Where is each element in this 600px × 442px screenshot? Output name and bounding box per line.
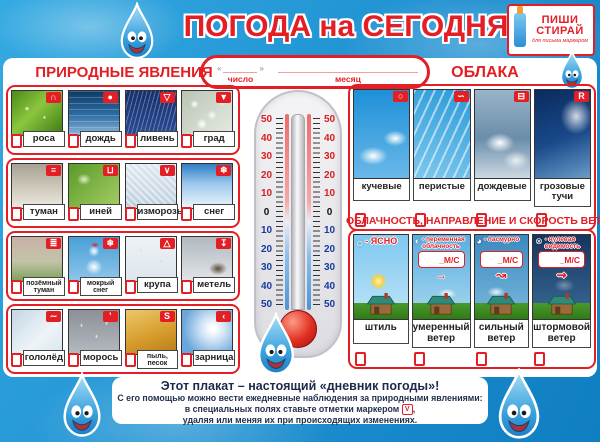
cloud-photo: ⊟ [474,89,531,179]
weather-symbol-icon: ∨ [160,165,175,176]
footer-line3-post: , [413,404,415,414]
wind-arrow-icon: ⇝ [533,269,590,281]
phenomenon-checkbox[interactable] [11,134,22,148]
phenomenon-card: ▼ град [181,90,235,150]
month-blank-field[interactable] [278,63,418,73]
phenomenon-photo: ’ [68,309,120,355]
footer-line3-pre: в специальных полях ставьте отметки марк… [185,404,400,414]
wind-arrow-icon: → [413,269,470,281]
phenomenon-photo: S [125,309,177,355]
phenomenon-card: S пыль, песок [125,309,179,369]
wind-legend-label: - ЯСНО [365,237,397,246]
phenomenon-checkbox[interactable] [125,353,136,367]
poster-title: ПОГОДА на СЕГОДНЯ [178,10,514,44]
thermometer-degree-label: 40 [322,281,337,292]
checkmark-box-icon: V [402,404,413,415]
phenomenon-checkbox[interactable] [125,207,136,221]
phenomenon-card: ‹ зарница [181,309,235,369]
cloud-symbol-icon: ○ [393,91,408,102]
cloud-symbol-icon: R [574,91,589,102]
phenomenon-checkbox[interactable] [68,134,79,148]
thermometer-degree-label: 10 [322,188,337,199]
cloud-photo: ○ [353,89,410,179]
marker-pen-icon [514,13,526,47]
weather-symbol-icon: ∼ [46,311,61,322]
thermometer-ticks-right [313,118,320,306]
phenomenon-photo: ▼ [181,90,233,136]
wind-photo: ◐ - переменная облачность _М/С → [412,234,471,320]
phenomena-row: ∼ гололёд ’ морось S пыль, песок ‹ зарни… [6,304,240,374]
phenomenon-checkbox[interactable] [125,134,136,148]
phenomenon-label: пыль, песок [137,350,179,369]
wind-checkbox[interactable] [476,352,487,366]
cloud-symbol-icon: ⊟ [514,91,529,102]
wind-card: ◕ - пасмурно _М/С ↝ сильный ветер [474,234,530,364]
thermometer-degree-label: 30 [259,262,274,273]
pishi-stiray-logo: ПИШИ СТИРАЙ для письма маркером [507,4,595,56]
weather-symbol-icon: ▼ [216,92,231,103]
wind-card: ⊗ - нулевая видимость _М/С ⇝ штормовой в… [532,234,591,364]
footer-line2: С его помощью можно вести ежедневные наб… [112,393,488,404]
phenomenon-label: крупа [137,277,179,293]
thermometer-degree-label: 50 [259,114,274,125]
water-drop-mascot-footer-left [56,372,108,438]
cloud-cover-circle-icon: ⊗ [535,237,543,246]
phenomenon-label: дождь [80,131,122,147]
phenomenon-card: ∨ изморозь [125,163,179,223]
wind-legend-label: - переменная облачность [422,237,465,251]
phenomenon-checkbox[interactable] [181,134,192,148]
phenomenon-card: ≣ позёмный туман [11,236,65,296]
thermometer-degree-label: 10 [259,188,274,199]
phenomenon-checkbox[interactable] [68,207,79,221]
weather-symbol-icon: ≡ [46,165,61,176]
wind-photo: ⊗ - нулевая видимость _М/С ⇝ [532,234,591,320]
weather-symbol-icon: ’ [103,311,118,322]
phenomenon-label: град [193,131,235,147]
phenomenon-checkbox[interactable] [11,207,22,221]
wind-label: умеренный ветер [412,320,471,348]
phenomenon-label: морось [80,350,122,366]
thermometer-degree-label: 50 [322,114,337,125]
phenomenon-photo: ∩ [11,90,63,136]
wind-label: штормовой ветер [532,320,591,348]
phenomenon-checkbox[interactable] [181,207,192,221]
wind-card: ◐ - переменная облачность _М/С → умеренн… [412,234,471,364]
cloud-card: ⊟ дождевые [474,89,531,226]
thermometer-degree-label: 50 [322,299,337,310]
wind-speed-field[interactable]: _М/С [418,251,465,268]
clouds-group: ○ кучевые ∽ перистые ⊟ дождевые R грозов… [348,84,596,231]
wind-legend-label: - нулевая видимость [545,237,581,251]
water-drop-mascot-header [106,2,168,60]
weather-symbol-icon: ‹ [216,311,231,322]
phenomenon-checkbox[interactable] [125,280,136,294]
phenomenon-checkbox[interactable] [68,353,79,367]
month-label: месяц [335,74,361,84]
phenomenon-card: ’ морось [68,309,122,369]
phenomenon-card: ≡ туман [11,163,65,223]
wind-photo: ○ - ЯСНО [353,234,409,320]
cloud-label: перистые [413,179,470,201]
phenomena-row: ≡ туман ⊔ иней ∨ изморозь ❄ снег [6,158,240,228]
wind-speed-unit: _М/С [560,255,580,265]
cloud-symbol-icon: ∽ [454,91,469,102]
wind-photo: ◕ - пасмурно _М/С ↝ [474,234,530,320]
phenomenon-photo: ↧ [181,236,233,282]
cloud-label: кучевые [353,179,410,201]
thermometer-degree-label: 40 [259,281,274,292]
wind-speed-unit: _М/С [498,255,518,265]
phenomenon-photo: ≡ [11,163,63,209]
thermometer-degree-label: 30 [322,262,337,273]
weather-symbol-icon: ≣ [46,238,61,249]
phenomenon-checkbox[interactable] [181,353,192,367]
thermometer-scale-right: 504030201001020304050 [322,114,337,310]
weather-symbol-icon: ⊔ [103,165,118,176]
weather-symbol-icon: ❄ [103,238,118,249]
phenomenon-photo: ▽ [125,90,177,136]
thermometer-degree-label: 30 [259,151,274,162]
phenomenon-card: ∩ роса [11,90,65,150]
house-icon [484,292,518,316]
phenomena-row: ∩ роса ● дождь ▽ ливень ▼ град [6,85,240,155]
weather-symbol-icon: △ [160,238,175,249]
cloud-card: ∽ перистые [413,89,470,226]
cloud-label: грозовые тучи [534,179,591,207]
weather-symbol-icon: ❄ [216,165,231,176]
thermometer-degree-label: 10 [259,225,274,236]
phenomena-section-title: ПРИРОДНЫЕ ЯВЛЕНИЯ [8,64,240,81]
logo-subtitle: для письма маркером [529,39,591,45]
thermometer-degree-label: 0 [259,207,274,218]
phenomenon-label: роса [23,131,65,147]
footer-text-panel: Этот плакат – настоящий «дневник погоды»… [112,377,488,424]
phenomena-row: ≣ позёмный туман ❄ мокрый снег △ крупа ↧… [6,231,240,301]
wind-checkbox[interactable] [414,352,425,366]
wind-arrow-icon: ↝ [475,269,529,281]
phenomenon-checkbox[interactable] [68,280,79,294]
phenomenon-card: △ крупа [125,236,179,296]
thermometer-degree-label: 20 [259,244,274,255]
phenomenon-label: позёмный туман [23,277,65,296]
phenomenon-label: изморозь [137,204,179,220]
weather-symbol-icon: ● [103,92,118,103]
thermometer-degree-label: 20 [322,244,337,255]
phenomenon-checkbox[interactable] [11,353,22,367]
thermometer-degree-label: 20 [322,170,337,181]
thermometer-degree-label: 40 [259,133,274,144]
water-drop-mascot-thermometer [250,312,302,376]
phenomenon-photo: ‹ [181,309,233,355]
thermometer-ticks-left [276,118,283,306]
thermometer-degree-label: 0 [322,207,337,218]
phenomenon-card: ● дождь [68,90,122,150]
phenomenon-label: туман [23,204,65,220]
cloud-card: R грозовые тучи [534,89,591,226]
phenomenon-label: снег [193,204,235,220]
clouds-section-title: ОБЛАКА [430,64,540,82]
cloud-card: ○ кучевые [353,89,410,226]
phenomenon-photo: ❄ [181,163,233,209]
house-icon [545,292,579,316]
weather-symbol-icon: S [160,311,175,322]
wind-label: сильный ветер [474,320,530,348]
wind-legend-label: - пасмурно [484,237,519,244]
phenomenon-label: ливень [137,131,179,147]
thermometer-degree-label: 50 [259,299,274,310]
phenomenon-card: ↧ метель [181,236,235,296]
phenomenon-checkbox[interactable] [181,280,192,294]
wind-checkbox[interactable] [534,352,545,366]
wind-speed-field[interactable]: _М/С [480,251,524,268]
logo-line2: СТИРАЙ [529,26,591,37]
phenomenon-label: мокрый снег [80,277,122,296]
weather-poster: ПОГОДА на СЕГОДНЯ ПИШИ СТИРАЙ для письма… [0,0,600,442]
phenomenon-card: ▽ ливень [125,90,179,150]
phenomenon-card: ∼ гололёд [11,309,65,369]
weather-symbol-icon: ▽ [160,92,175,103]
thermometer-scale-left: 504030201001020304050 [259,114,274,310]
cloud-label: дождевые [474,179,531,201]
phenomenon-photo: ● [68,90,120,136]
phenomenon-photo: ∨ [125,163,177,209]
phenomenon-card: ⊔ иней [68,163,122,223]
wind-speed-field[interactable]: _М/С [538,251,585,268]
phenomenon-label: гололёд [23,350,65,366]
cloud-cover-circle-icon: ○ [356,237,363,249]
thermometer-degree-label: 30 [322,151,337,162]
thermometer-tube [291,114,305,310]
quote-close: » [259,64,263,73]
thermometer-degree-label: 10 [322,225,337,236]
wind-label: штиль [353,320,409,344]
water-drop-mascot-footer-right [490,368,548,440]
phenomenon-label: зарница [193,350,235,366]
phenomenon-checkbox[interactable] [11,280,22,294]
phenomenon-photo: ⊔ [68,163,120,209]
phenomena-grid: ∩ роса ● дождь ▽ ливень ▼ град ≡ туман ⊔… [6,85,240,377]
phenomenon-label: иней [80,204,122,220]
house-icon [364,292,398,316]
footer-line4: удаляя или меняя их при происходящих изм… [112,415,488,426]
phenomenon-photo: ❄ [68,236,120,282]
footer-headline: Этот плакат – настоящий «дневник погоды»… [112,379,488,393]
phenomenon-photo: ∼ [11,309,63,355]
cloud-cover-circle-icon: ◕ [477,237,482,246]
phenomenon-card: ❄ мокрый снег [68,236,122,296]
cloud-cover-circle-icon: ◐ [415,237,420,246]
wind-card: ○ - ЯСНО штиль [353,234,409,364]
wind-group: ○ - ЯСНО штиль ◐ - переменная облачность… [348,229,596,369]
wind-section-title: ОБЛАЧНОСТЬ, НАПРАВЛЕНИЕ И СКОРОСТЬ ВЕТРА [346,215,598,227]
thermometer-degree-label: 40 [322,133,337,144]
weather-symbol-icon: ↧ [216,238,231,249]
phenomenon-label: метель [193,277,235,293]
thermometer-degree-label: 20 [259,170,274,181]
cloud-photo: ∽ [413,89,470,179]
cloud-photo: R [534,89,591,179]
phenomenon-photo: ≣ [11,236,63,282]
wind-checkbox[interactable] [355,352,366,366]
weather-symbol-icon: ∩ [46,92,61,103]
house-icon [424,292,458,316]
wind-speed-unit: _М/С [439,255,459,265]
phenomenon-card: ❄ снег [181,163,235,223]
phenomenon-photo: △ [125,236,177,282]
